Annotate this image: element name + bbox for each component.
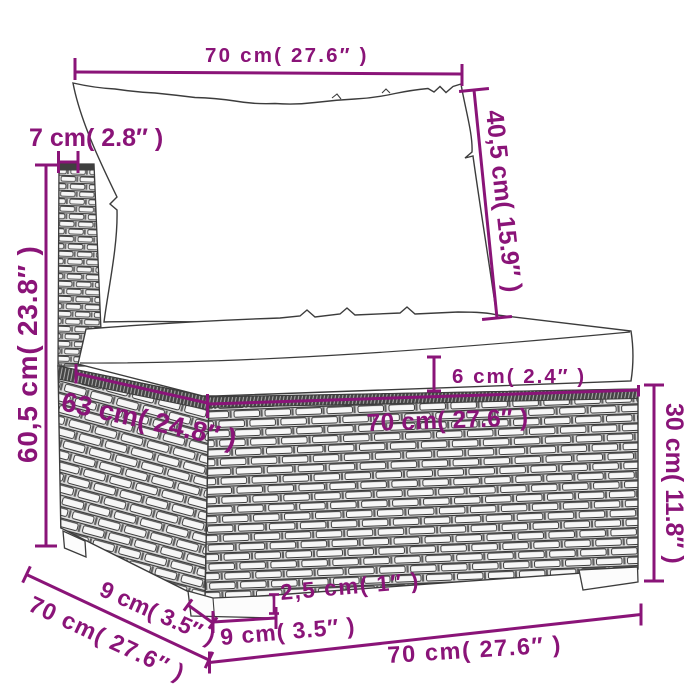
svg-text:70 cm( 27.6″ ): 70 cm( 27.6″ ) [387, 631, 563, 668]
svg-text:6 cm( 2.4″ ): 6 cm( 2.4″ ) [452, 365, 586, 388]
svg-text:9 cm( 3.5″ ): 9 cm( 3.5″ ) [219, 612, 356, 650]
svg-text:60,5 cm( 23.8″ ): 60,5 cm( 23.8″ ) [12, 245, 43, 463]
svg-text:30 cm( 11.8″ ): 30 cm( 11.8″ ) [660, 403, 688, 564]
svg-text:70 cm( 27.6″ ): 70 cm( 27.6″ ) [366, 404, 528, 437]
svg-text:70 cm( 27.6″ ): 70 cm( 27.6″ ) [205, 44, 369, 67]
svg-text:7 cm( 2.8″ ): 7 cm( 2.8″ ) [29, 124, 163, 152]
